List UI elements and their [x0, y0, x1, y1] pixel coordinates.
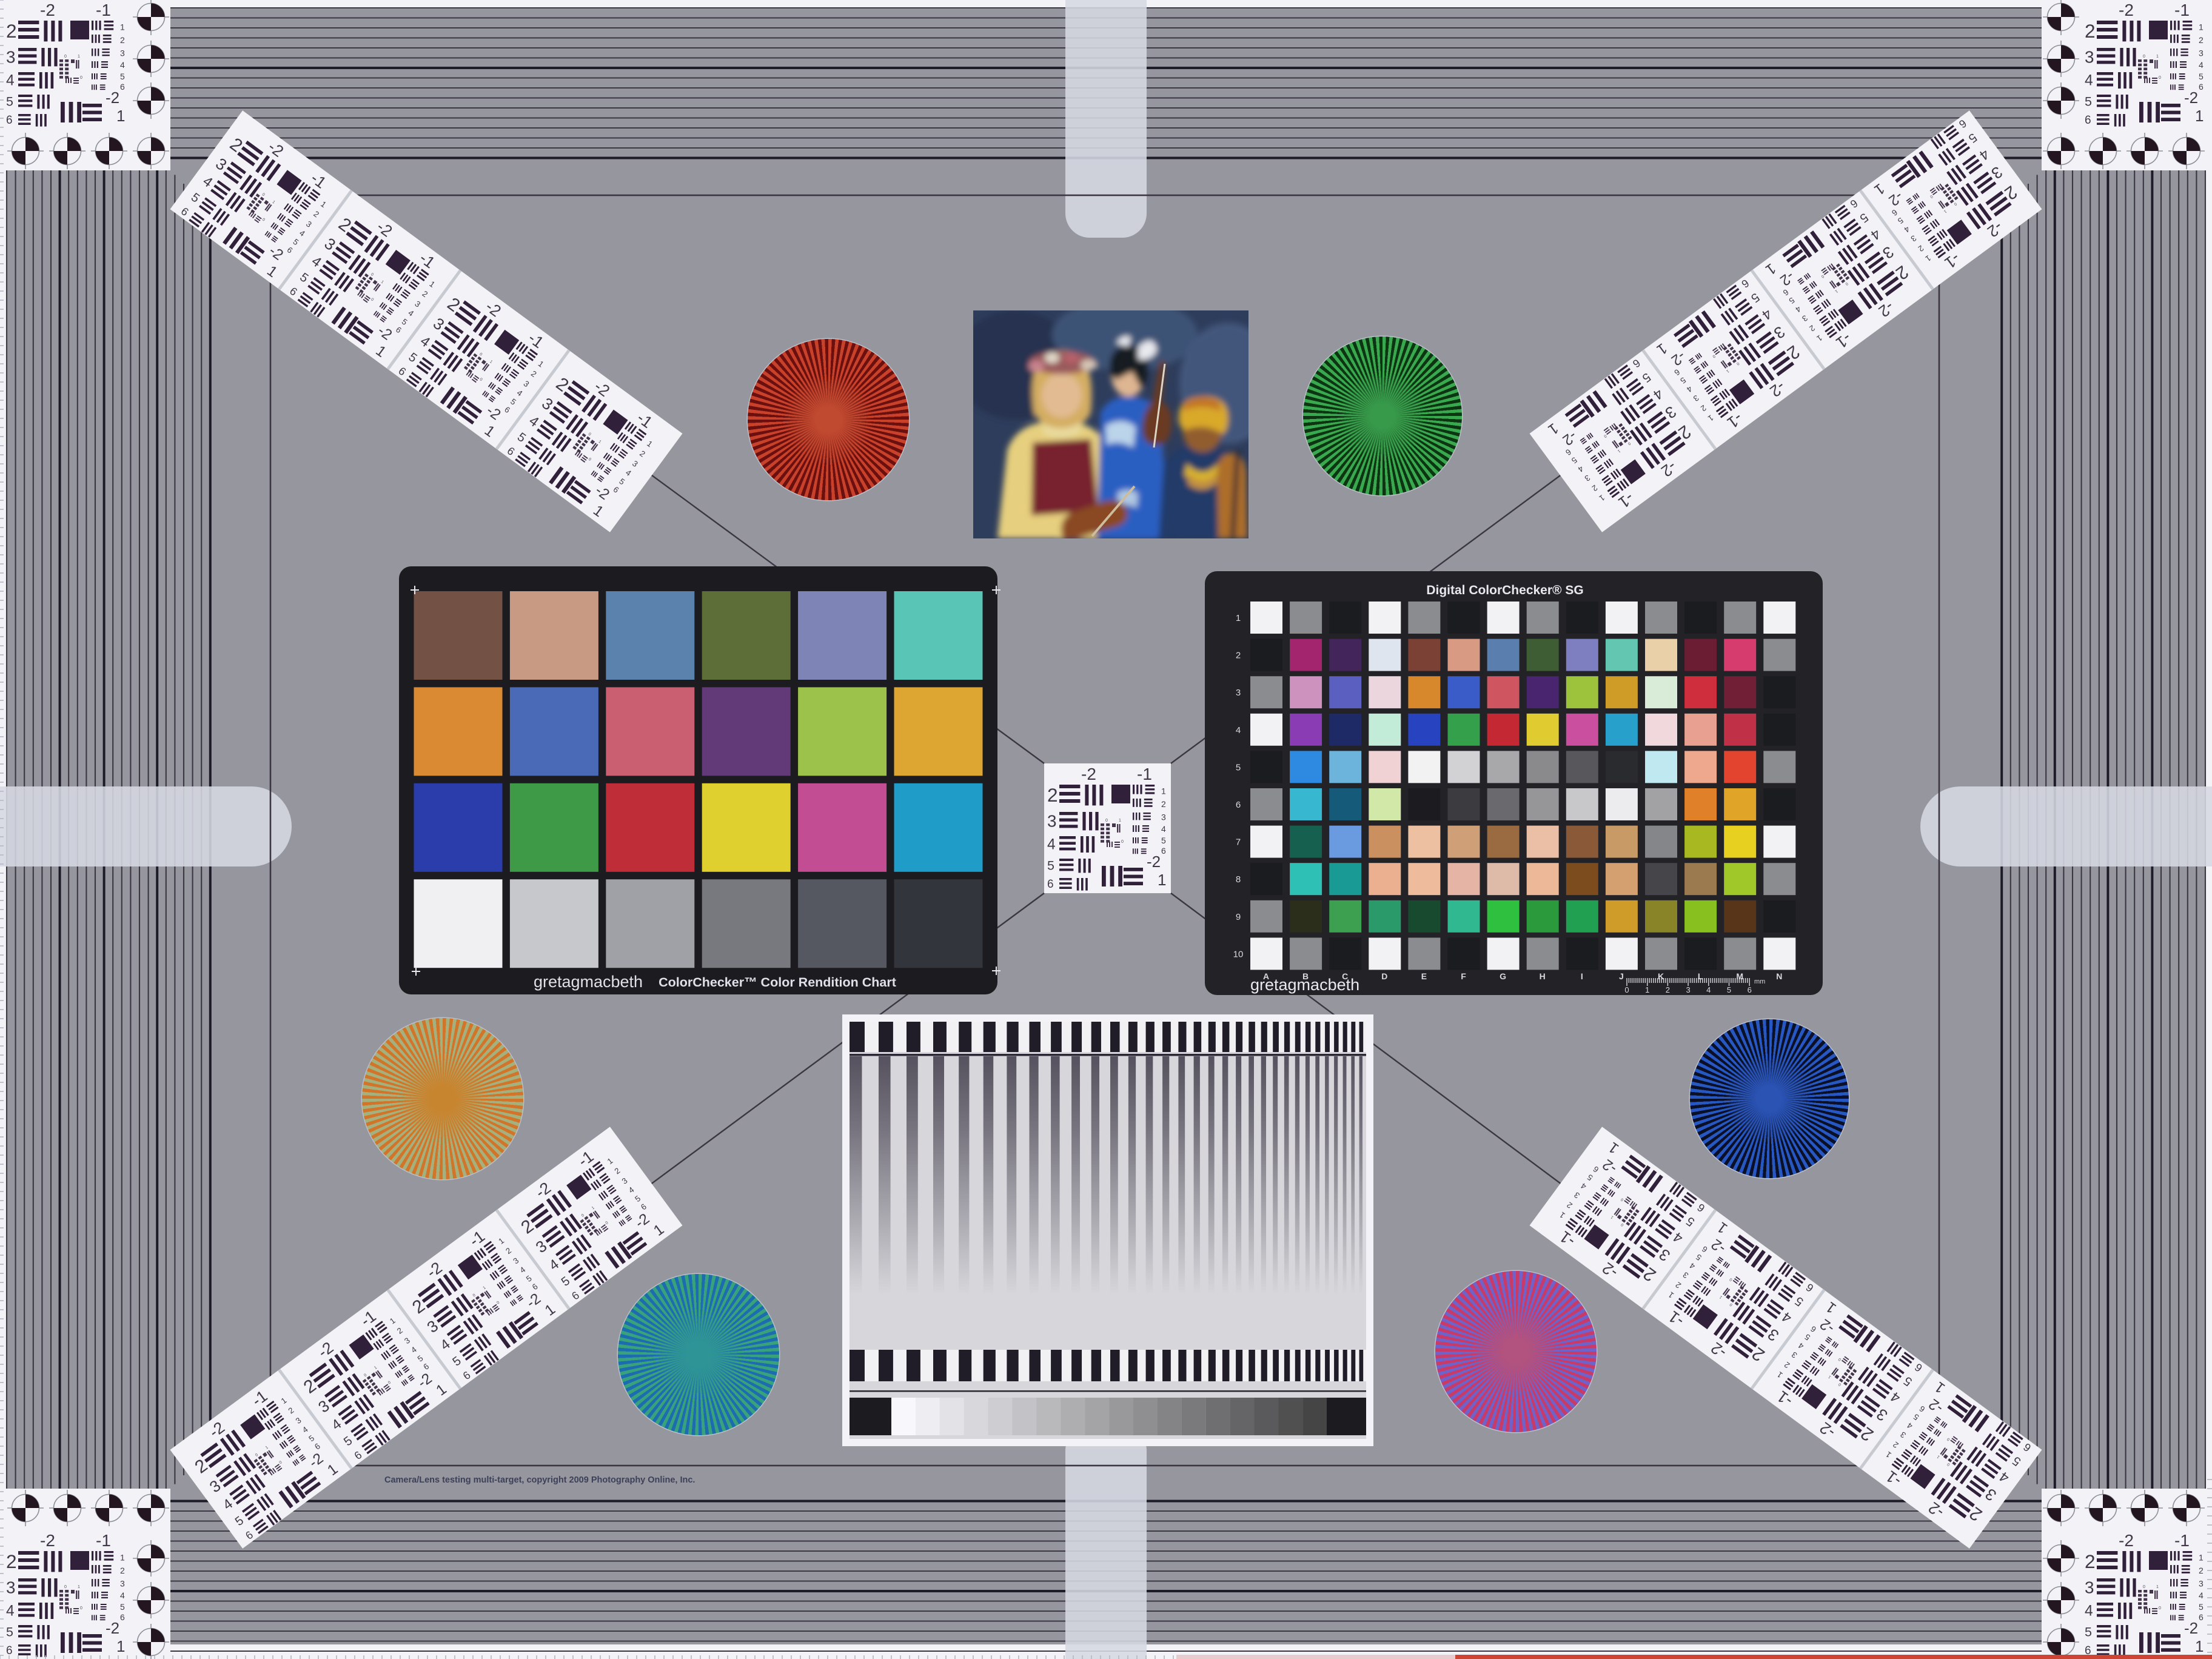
svg-text:6: 6	[1748, 985, 1752, 994]
svg-text:8: 8	[1236, 874, 1241, 885]
svg-text:6: 6	[1236, 800, 1241, 810]
svg-text:D: D	[1381, 971, 1387, 981]
svg-text:4: 4	[1236, 725, 1241, 736]
svg-text:1: 1	[1645, 985, 1649, 994]
svg-text:9: 9	[1236, 912, 1241, 922]
svg-text:F: F	[1461, 971, 1466, 981]
svg-text:I: I	[1581, 971, 1583, 981]
svg-text:mm: mm	[1754, 978, 1765, 985]
svg-text:Camera/Lens testing multi-targ: Camera/Lens testing multi-target, copyri…	[384, 1475, 695, 1485]
svg-text:4: 4	[1706, 985, 1711, 994]
svg-text:J: J	[1619, 971, 1624, 981]
svg-text:1: 1	[1236, 613, 1241, 623]
svg-text:H: H	[1540, 971, 1546, 981]
svg-text:2: 2	[1236, 651, 1241, 661]
svg-text:7: 7	[1236, 837, 1241, 848]
svg-text:0: 0	[1624, 985, 1629, 994]
svg-text:ColorChecker™ Color Rendition: ColorChecker™ Color Rendition Chart	[659, 975, 896, 990]
svg-text:gretagmacbeth: gretagmacbeth	[1250, 976, 1359, 994]
svg-text:G: G	[1500, 971, 1506, 981]
svg-text:3: 3	[1686, 985, 1690, 994]
svg-text:10: 10	[1233, 949, 1244, 959]
svg-text:3: 3	[1236, 688, 1241, 698]
svg-text:5: 5	[1727, 985, 1731, 994]
svg-text:5: 5	[1236, 762, 1241, 773]
svg-text:gretagmacbeth: gretagmacbeth	[534, 973, 643, 991]
svg-text:Digital ColorChecker® SG: Digital ColorChecker® SG	[1426, 583, 1583, 597]
svg-text:E: E	[1421, 971, 1427, 981]
svg-text:K: K	[1658, 971, 1664, 981]
svg-text:2: 2	[1666, 985, 1670, 994]
svg-text:N: N	[1776, 971, 1782, 981]
